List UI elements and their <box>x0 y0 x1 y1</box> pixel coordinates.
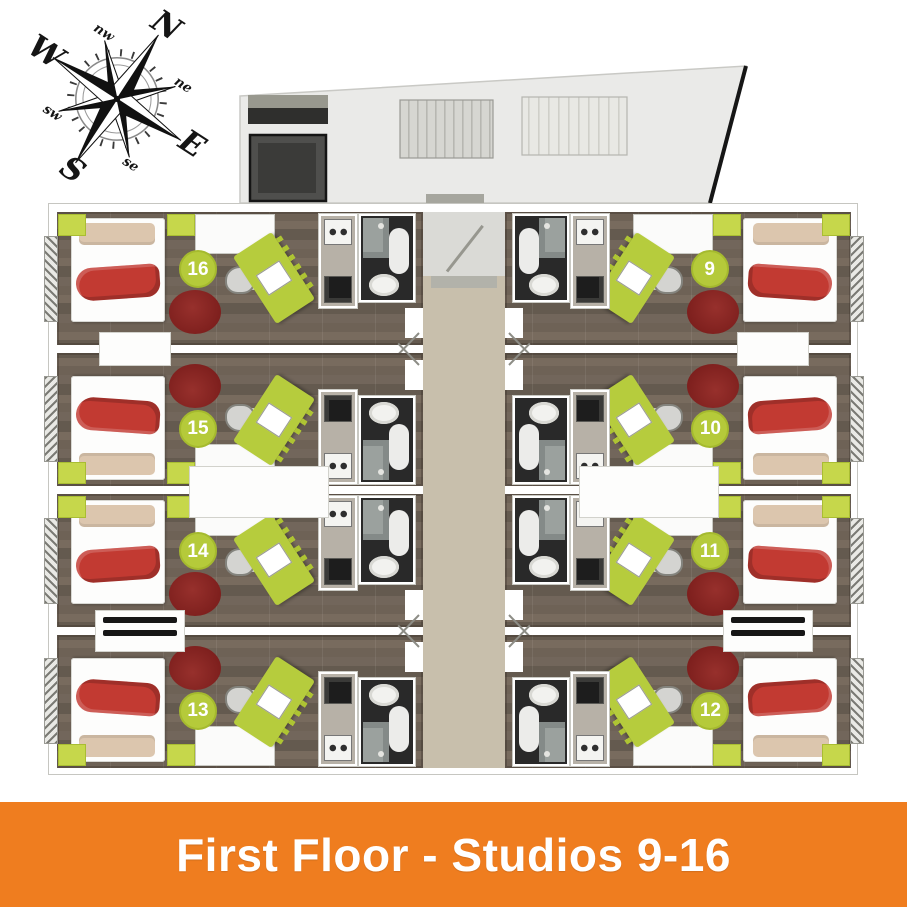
desk-area <box>225 516 309 610</box>
nightstand <box>713 744 741 766</box>
wardrobe-block <box>99 332 171 366</box>
oven <box>324 558 352 585</box>
bathroom <box>513 396 569 484</box>
washbasin <box>519 228 539 274</box>
toilet <box>529 402 559 424</box>
studio-number-label: 11 <box>700 542 720 561</box>
studio-unit: 16 <box>57 212 423 345</box>
toilet <box>369 684 399 706</box>
corridor-step <box>431 276 497 288</box>
stove-hob <box>576 219 604 245</box>
studio-number-label: 13 <box>187 702 208 721</box>
stove-hob <box>324 735 352 761</box>
floor-plan: 16 15 <box>48 203 858 775</box>
studio-unit: 9 <box>505 212 851 345</box>
oven <box>576 276 604 303</box>
desk-area <box>599 234 683 328</box>
rug <box>169 290 221 334</box>
compass-rose: N E S W nw ne se sw <box>14 0 220 204</box>
wardrobe-block <box>737 332 809 366</box>
entry-threshold <box>426 194 484 203</box>
desk-area <box>599 516 683 610</box>
compass-label-se: se <box>120 153 142 175</box>
compass-label-w: W <box>21 28 72 79</box>
studio-number-label: 15 <box>187 420 208 439</box>
studio-entry-door <box>405 642 423 672</box>
rug <box>687 646 739 690</box>
shower <box>539 218 565 258</box>
desk-area <box>599 370 683 464</box>
floor-plan-page: N E S W nw ne se sw <box>0 0 907 907</box>
toilet <box>369 556 399 578</box>
building-wall-segment <box>248 95 328 108</box>
radiator-icon <box>731 630 805 636</box>
studio-number-label: 9 <box>705 260 716 279</box>
studio-number-badge: 9 <box>691 250 729 288</box>
washbasin <box>389 424 409 470</box>
shower <box>363 722 389 762</box>
wardrobe-block <box>579 466 719 518</box>
rug <box>687 290 739 334</box>
bed-blanket <box>747 396 833 435</box>
studio-number-badge: 10 <box>691 410 729 448</box>
bed-pillow <box>753 505 829 527</box>
compass-label-n: N <box>144 2 190 49</box>
washbasin <box>389 510 409 556</box>
nightstand <box>822 462 850 484</box>
studio-entry-door <box>505 642 523 672</box>
kitchenette <box>319 214 357 308</box>
nightstand <box>58 496 86 518</box>
bathroom <box>359 396 415 484</box>
kitchenette <box>571 214 609 308</box>
studio-entry-door <box>505 590 523 620</box>
nightstand <box>58 744 86 766</box>
compass-label-s: S <box>53 149 91 191</box>
laptop <box>256 684 293 719</box>
rug <box>687 364 739 408</box>
desk-area <box>225 652 309 746</box>
studio-number-badge: 12 <box>691 692 729 730</box>
radiator-icon <box>731 617 805 623</box>
bathroom <box>513 214 569 302</box>
laptop <box>256 260 293 295</box>
nightstand <box>58 214 86 236</box>
washbasin <box>389 228 409 274</box>
nightstand <box>167 214 195 236</box>
shower <box>539 440 565 480</box>
compass-label-nw: nw <box>91 20 118 45</box>
title-banner: First Floor - Studios 9-16 <box>0 802 907 907</box>
balcony-railing <box>850 518 864 604</box>
laptop <box>616 542 653 577</box>
balcony-railing <box>850 376 864 462</box>
studio-number-badge: 14 <box>179 532 217 570</box>
studio-number-badge: 13 <box>179 692 217 730</box>
oven <box>576 558 604 585</box>
balcony-railing <box>44 518 58 604</box>
bed-pillow <box>79 453 155 475</box>
staircase-right <box>522 97 627 155</box>
door-swing <box>397 343 419 366</box>
studio-unit: 12 <box>505 635 851 768</box>
nightstand <box>822 214 850 236</box>
laptop <box>256 542 293 577</box>
nightstand <box>167 744 195 766</box>
entry-door-swing <box>446 225 484 273</box>
shower <box>539 500 565 540</box>
balcony-railing <box>850 236 864 322</box>
toilet <box>529 684 559 706</box>
compass-label-e: E <box>171 122 212 166</box>
desk-area <box>225 370 309 464</box>
oven <box>576 677 604 704</box>
balcony-railing <box>44 658 58 744</box>
shower <box>363 218 389 258</box>
bed-blanket <box>747 678 833 717</box>
washbasin <box>389 706 409 752</box>
studio-number-label: 14 <box>187 542 208 561</box>
bed-blanket <box>75 678 161 717</box>
laptop <box>616 684 653 719</box>
bed-blanket <box>747 545 833 584</box>
oven <box>576 395 604 422</box>
compass-label-ne: ne <box>171 73 195 96</box>
studio-entry-door <box>405 360 423 390</box>
studio-number-badge: 16 <box>179 250 217 288</box>
wardrobe-block <box>189 466 329 518</box>
studio-number-label: 10 <box>699 420 720 439</box>
washbasin <box>519 424 539 470</box>
shower <box>363 500 389 540</box>
toilet <box>369 274 399 296</box>
laptop <box>616 260 653 295</box>
shower <box>539 722 565 762</box>
desk <box>233 656 315 748</box>
studio-entry-door <box>505 308 523 338</box>
studio-entry-door <box>405 590 423 620</box>
desk-area <box>599 652 683 746</box>
studio-number-badge: 15 <box>179 410 217 448</box>
bathroom <box>359 214 415 302</box>
shower <box>363 440 389 480</box>
studio-entry-door <box>405 308 423 338</box>
washbasin <box>519 510 539 556</box>
rug <box>169 364 221 408</box>
studio-entry-door <box>505 360 523 390</box>
entry-vestibule <box>423 212 505 276</box>
toilet <box>369 402 399 424</box>
nightstand <box>822 744 850 766</box>
oven <box>324 276 352 303</box>
balcony-railing <box>44 236 58 322</box>
balcony-railing <box>850 658 864 744</box>
staircase-left <box>400 100 493 158</box>
studio-unit: 13 <box>57 635 423 768</box>
desk <box>233 374 315 466</box>
bed-pillow <box>753 453 829 475</box>
toilet <box>529 556 559 578</box>
nightstand <box>822 496 850 518</box>
studio-number-badge: 11 <box>691 532 729 570</box>
bathroom <box>513 678 569 766</box>
kitchenette <box>571 672 609 766</box>
oven <box>324 395 352 422</box>
radiator-icon <box>103 617 177 623</box>
bathroom <box>513 496 569 584</box>
bathroom <box>359 678 415 766</box>
toilet <box>529 274 559 296</box>
bed-blanket <box>75 396 161 435</box>
bed-pillow <box>79 735 155 757</box>
studio-number-label: 16 <box>187 260 208 279</box>
nightstand <box>713 214 741 236</box>
bed-pillow <box>79 505 155 527</box>
page-title: First Floor - Studios 9-16 <box>176 828 731 882</box>
bathroom <box>359 496 415 584</box>
door-swing <box>397 625 419 648</box>
nightstand <box>58 462 86 484</box>
central-corridor <box>423 212 505 768</box>
bed-pillow <box>753 735 829 757</box>
laptop <box>616 402 653 437</box>
kitchenette <box>319 672 357 766</box>
bed-pillow <box>753 223 829 245</box>
rug <box>169 646 221 690</box>
bed-pillow <box>79 223 155 245</box>
washbasin <box>519 706 539 752</box>
balcony-railing <box>44 376 58 462</box>
radiator-icon <box>103 630 177 636</box>
bed-blanket <box>75 263 161 302</box>
compass-label-sw: sw <box>40 101 65 125</box>
bed-blanket <box>747 263 833 302</box>
oven <box>324 677 352 704</box>
stove-hob <box>324 219 352 245</box>
building-stair-core <box>228 58 768 204</box>
stove-hob <box>576 735 604 761</box>
bed-blanket <box>75 545 161 584</box>
studio-number-label: 12 <box>699 702 720 721</box>
desk-area <box>225 234 309 328</box>
laptop <box>256 402 293 437</box>
